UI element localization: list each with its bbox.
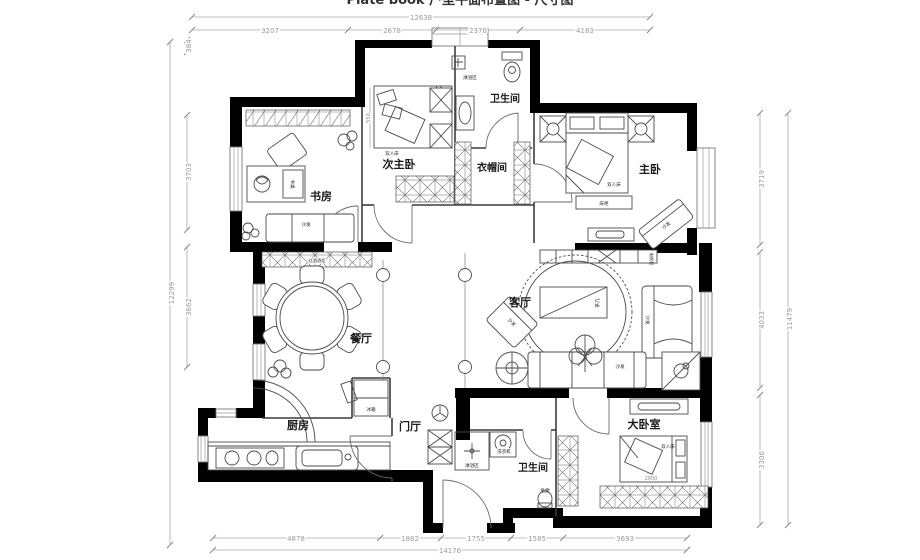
door-big-bedroom (573, 398, 609, 434)
dining-table (276, 282, 348, 354)
bed-label: 双人床 (385, 150, 399, 157)
dim-right-3: 3306 (758, 451, 766, 469)
room-bath-bottom: 淋浴区 洗衣机 坐便 卫生间 (455, 432, 552, 508)
dim-left-total: 12299 (168, 282, 176, 304)
floorplan-drawing: 书桌 沙发 书房 双人床 次主卧 550 (0, 0, 920, 560)
nightstand (430, 124, 452, 148)
sofa-main (528, 352, 646, 388)
shelf-cabinet (246, 110, 350, 126)
dim-left-3: 3662 (185, 298, 193, 316)
sofa-study (266, 214, 354, 242)
fan-icon (432, 405, 448, 421)
floorplan-canvas: Plate book 户型平面布置图 - 尺寸图 (0, 0, 920, 560)
room-label-living: 客厅 (508, 295, 531, 309)
toilet-label: 坐便 (540, 487, 550, 494)
nightstand (628, 116, 654, 142)
window (230, 147, 242, 211)
shower-label: 淋浴区 (465, 462, 479, 469)
room-second-master: 双人床 次主卧 550 (366, 86, 454, 202)
dim-bottom-2: 1882 (401, 535, 419, 543)
room-label-master: 主卧 (639, 162, 661, 176)
dim-top-2: 2678 (383, 27, 401, 35)
dim-left-2: 3703 (185, 163, 193, 181)
dim-2000: 2000 (645, 476, 658, 482)
column (377, 269, 390, 282)
cabinet-row (600, 486, 708, 508)
desk (247, 166, 305, 202)
room-label-study: 书房 (310, 189, 332, 203)
closet (455, 142, 471, 204)
bed-label: 双人床 (607, 181, 621, 188)
dimension-top: 12638 3207 2678 2376 4183 (189, 14, 653, 35)
room-label-foyer: 门厅 (399, 419, 421, 433)
room-label-second-master: 次主卧 (383, 157, 416, 171)
dim-top-3: 2376 (469, 27, 487, 35)
tv-cabinet-label: 电视柜 (648, 253, 655, 266)
sofa-label: 沙发 (615, 363, 625, 370)
sink-icon (456, 96, 474, 130)
closet (558, 436, 578, 506)
room-dining: 红酒酒柜 餐厅 (261, 252, 372, 378)
door-entry (443, 480, 491, 528)
room-bath-top: 淋浴区 卫生间 (452, 52, 522, 130)
dimension-right: 3719 4033 3306 11479 (757, 110, 794, 528)
dim-top-4: 4183 (576, 27, 594, 35)
side-table (662, 352, 700, 390)
window (701, 292, 712, 357)
plant-icon (242, 223, 259, 240)
fridge-label: 冰箱 (366, 406, 376, 413)
dim-right-2: 4033 (758, 311, 766, 329)
dim-right-1: 3719 (758, 170, 766, 188)
room-study: 书桌 沙发 书房 (242, 110, 357, 242)
sink-icon (296, 446, 358, 470)
wardrobe (396, 176, 454, 202)
dim-bottom-total: 14176 (439, 547, 462, 555)
room-label-cloakroom: 衣帽间 (477, 161, 507, 174)
dim-550: 550 (366, 113, 372, 123)
room-label-big-bedroom: 大卧室 (628, 417, 661, 431)
room-label-dining: 餐厅 (349, 331, 372, 345)
room-label-bath-top: 卫生间 (490, 92, 520, 105)
wall-shelf (630, 399, 688, 414)
dimension-bottom: 4878 1882 1755 1585 3693 14176 (210, 535, 690, 555)
tea-table-label: 茶几 (594, 298, 601, 308)
shower-icon (452, 56, 465, 69)
tv-wall-cabinet (540, 250, 657, 263)
sofa-label: 沙发 (301, 221, 311, 228)
plant-icon (268, 360, 291, 378)
nightstand (430, 88, 452, 112)
dim-bottom-1: 4878 (287, 535, 305, 543)
door-bath-top (486, 113, 518, 148)
door-bath-bottom (523, 431, 551, 459)
window (198, 436, 208, 462)
shoe-cabinet (428, 430, 452, 464)
room-master: 双人床 床柜 主卧 沙发 (540, 113, 694, 249)
door-second-master (374, 205, 412, 243)
dim-bottom-4: 1585 (528, 535, 546, 543)
window (253, 344, 265, 380)
desk-label: 书桌 (289, 179, 296, 189)
washer-label: 洗衣机 (497, 448, 511, 455)
bed-bench-label: 床柜 (599, 200, 609, 207)
window (216, 409, 236, 417)
dim-bottom-3: 1755 (467, 535, 485, 543)
bed-label: 双人床 (661, 443, 675, 450)
column (459, 361, 472, 374)
room-label-bath-bottom: 卫生间 (518, 461, 548, 474)
column (377, 361, 390, 374)
room-living: 电视柜 茶几 沙发 沙发 沙发 客厅 (486, 250, 700, 390)
plant-icon (338, 131, 357, 150)
column (459, 269, 472, 282)
tv-cabinet-master (588, 228, 634, 241)
dim-left-1: 384 (185, 39, 193, 53)
dimension-left: 12299 384 3703 3662 (167, 37, 193, 548)
dim-right-total: 11479 (786, 308, 794, 330)
nightstand (540, 116, 566, 142)
window (701, 422, 712, 487)
room-label-kitchen: 厨房 (287, 418, 309, 432)
wine-cabinet-label: 红酒酒柜 (309, 257, 326, 264)
room-cloakroom: 衣帽间 (455, 142, 530, 204)
room-foyer: 门厅 (399, 405, 452, 464)
toilet-icon (502, 52, 522, 82)
round-side-table (496, 352, 528, 384)
shower-label: 淋浴区 (463, 74, 477, 81)
closet (514, 142, 530, 204)
double-bed (566, 113, 628, 193)
sofa-label: 沙发 (644, 315, 651, 325)
room-big-bedroom: 双人床 2000 大卧室 (558, 399, 708, 508)
bay-window-master (697, 148, 715, 228)
stove-icon (216, 448, 284, 468)
dim-bottom-5: 3693 (616, 535, 634, 543)
fridge-icon (341, 380, 388, 416)
room-kitchen: 冰箱 厨房 (208, 380, 390, 470)
dim-top-total: 12638 (410, 14, 432, 22)
dim-top-1: 3207 (261, 27, 279, 35)
